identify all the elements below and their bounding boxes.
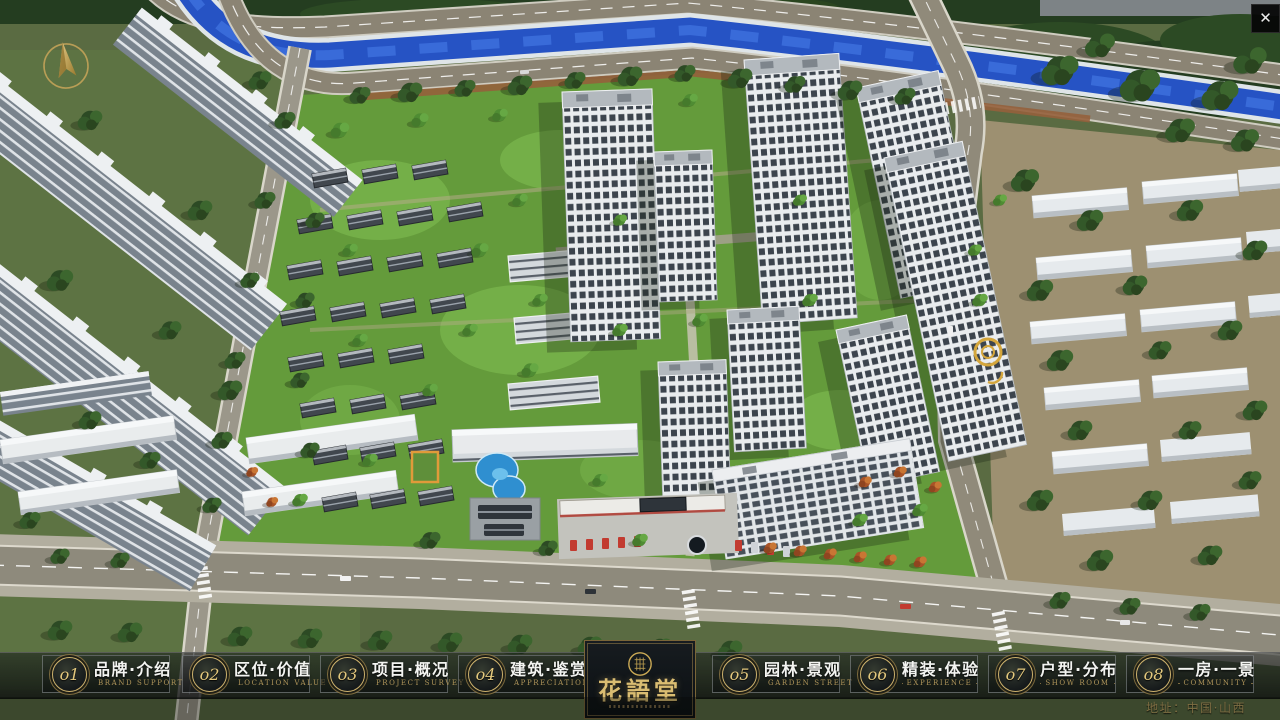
nav-label-6: 精装·体验 [902,661,977,679]
close-button[interactable]: ✕ [1251,4,1280,33]
logo-title: 花語堂 [598,679,682,703]
nav-item-landscape[interactable]: o5 园林·景观 GARDEN STREET [712,655,840,693]
nav-sublabel-1: BRAND SUPPORT [94,679,169,687]
nav-badge-3: o3 [330,657,365,692]
nav-sublabel-8: COMMUNITY [1178,679,1253,687]
nav-label-1: 品牌·介绍 [94,661,169,679]
nav-sublabel-3: PROJECT SURVEY [372,679,447,687]
nav-item-architecture[interactable]: o4 建筑·鉴赏 APPRECIATION [458,655,586,693]
nav-badge-7: o7 [998,657,1033,692]
project-address: 地址：中国·山西 [1146,699,1246,716]
clubhouse [470,498,540,540]
nav-badge-2: o2 [192,657,227,692]
close-icon: ✕ [1259,11,1272,26]
nav-item-brand[interactable]: o1 品牌·介绍 BRAND SUPPORT [42,655,170,693]
nav-sublabel-7: SHOW ROOM [1040,679,1115,687]
nav-label-2: 区位·价值 [234,661,309,679]
nav-label-3: 项目·概况 [372,661,447,679]
seal-icon [627,651,653,677]
nav-label-4: 建筑·鉴赏 [510,661,585,679]
nav-item-views[interactable]: o8 一房·一景 COMMUNITY [1126,655,1254,693]
logo-panel[interactable]: 花語堂 [584,640,696,719]
nav-item-location[interactable]: o2 区位·价值 LOCATION VALUE [182,655,310,693]
nav-label-8: 一房·一景 [1178,661,1253,679]
nav-sublabel-4: APPRECIATION [510,679,585,687]
aerial-masterplan-image [0,0,1280,720]
nav-sublabel-6: EXPERIENCE [902,679,977,687]
nav-label-5: 园林·景观 [764,661,839,679]
nav-badge-6: o6 [860,657,895,692]
nav-item-interior[interactable]: o6 精装·体验 EXPERIENCE [850,655,978,693]
nav-item-floorplans[interactable]: o7 户型·分布 SHOW ROOM [988,655,1116,693]
nav-item-project[interactable]: o3 项目·概况 PROJECT SURVEY [320,655,448,693]
sales-presentation-app: ✕ o1 品牌·介绍 BRAND SUPPORT o2 区位·价值 LOCATI… [0,0,1280,720]
nav-badge-1: o1 [52,657,87,692]
compass-north-icon [36,36,96,96]
nav-badge-4: o4 [468,657,503,692]
logo-subtext-line [609,705,671,708]
nav-badge-8: o8 [1136,657,1171,692]
nav-badge-5: o5 [722,657,757,692]
nav-label-7: 户型·分布 [1040,661,1115,679]
nav-sublabel-2: LOCATION VALUE [234,679,309,687]
nav-sublabel-5: GARDEN STREET [764,679,839,687]
